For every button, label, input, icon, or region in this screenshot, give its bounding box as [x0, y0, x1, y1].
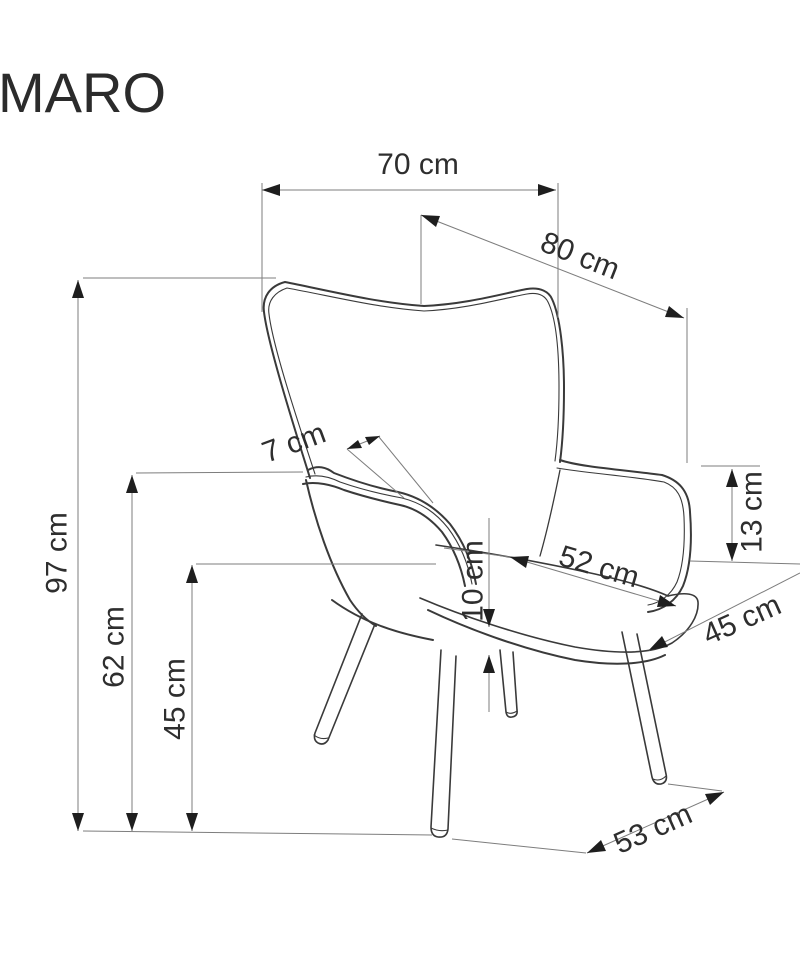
arrowhead — [510, 556, 529, 568]
dim-label-total-width: 70 cm — [377, 148, 459, 181]
chair-leg-rear-left — [500, 650, 517, 717]
extension-line — [668, 784, 722, 791]
chair-leg-rear-right — [622, 632, 666, 784]
product-title: MARO — [0, 61, 166, 124]
chair-leg-rear-left-cap — [506, 711, 517, 713]
extension-line — [136, 472, 303, 473]
extension-line — [83, 831, 432, 835]
chair-armrest-mid — [306, 476, 472, 584]
dim-total-depth: 80 cm — [421, 215, 687, 463]
arrowhead — [365, 436, 380, 445]
arrowhead — [126, 475, 138, 493]
arrowhead — [186, 813, 198, 831]
dim-label-armrest-height: 62 cm — [98, 606, 131, 688]
chair-back-seat-junction — [540, 470, 560, 556]
arrowhead — [421, 215, 440, 227]
dim-label-leg-span: 53 cm — [609, 797, 697, 860]
chair-back-left-lower — [306, 480, 376, 626]
dim-label-seat-width: 52 cm — [555, 540, 643, 595]
dim-total-height: 97 cm — [41, 278, 433, 835]
furniture-dimension-sheet: MARO — [0, 0, 800, 960]
arrowhead — [665, 306, 684, 318]
dim-label-seat-depth: 45 cm — [698, 588, 786, 651]
dim-armrest-height: 62 cm — [98, 472, 304, 831]
dim-label-wing-height: 13 cm — [736, 471, 769, 553]
dim-wing-height: 13 cm — [690, 466, 800, 564]
chair-leg-rear-right-cap — [653, 776, 666, 780]
arrowhead — [126, 813, 138, 831]
dim-label-cushion-thickness: 10 cm — [457, 540, 490, 622]
arrowhead — [72, 280, 84, 298]
arrowhead — [72, 813, 84, 831]
dim-seat-depth: 45 cm — [649, 573, 800, 652]
arrowhead — [262, 184, 280, 196]
arrowhead — [538, 184, 556, 196]
extension-line — [690, 561, 800, 564]
arrowhead — [587, 840, 606, 853]
extension-line — [379, 437, 433, 503]
dim-cushion-thickness: 10 cm — [457, 518, 496, 712]
dim-label-seat-height: 45 cm — [159, 658, 192, 740]
chair-leg-front-right — [431, 650, 456, 837]
arrowhead — [347, 440, 362, 449]
arrowhead — [186, 565, 198, 583]
chair-leg-front-left-cap — [314, 735, 328, 739]
chair-leg-front-left — [314, 614, 375, 744]
arrowhead — [705, 792, 724, 805]
extension-line — [452, 839, 586, 853]
chair-leg-front-right-cap — [431, 828, 448, 831]
arrowhead — [483, 655, 495, 673]
dimension-diagram: MARO — [0, 0, 800, 960]
chair-armrest-bottom — [303, 483, 465, 586]
dim-seat-height: 45 cm — [159, 564, 437, 831]
chair-seat-front-left — [332, 600, 433, 640]
dim-leg-span: 53 cm — [452, 784, 724, 861]
dim-label-total-height: 97 cm — [41, 512, 74, 594]
arrowhead — [649, 636, 668, 650]
